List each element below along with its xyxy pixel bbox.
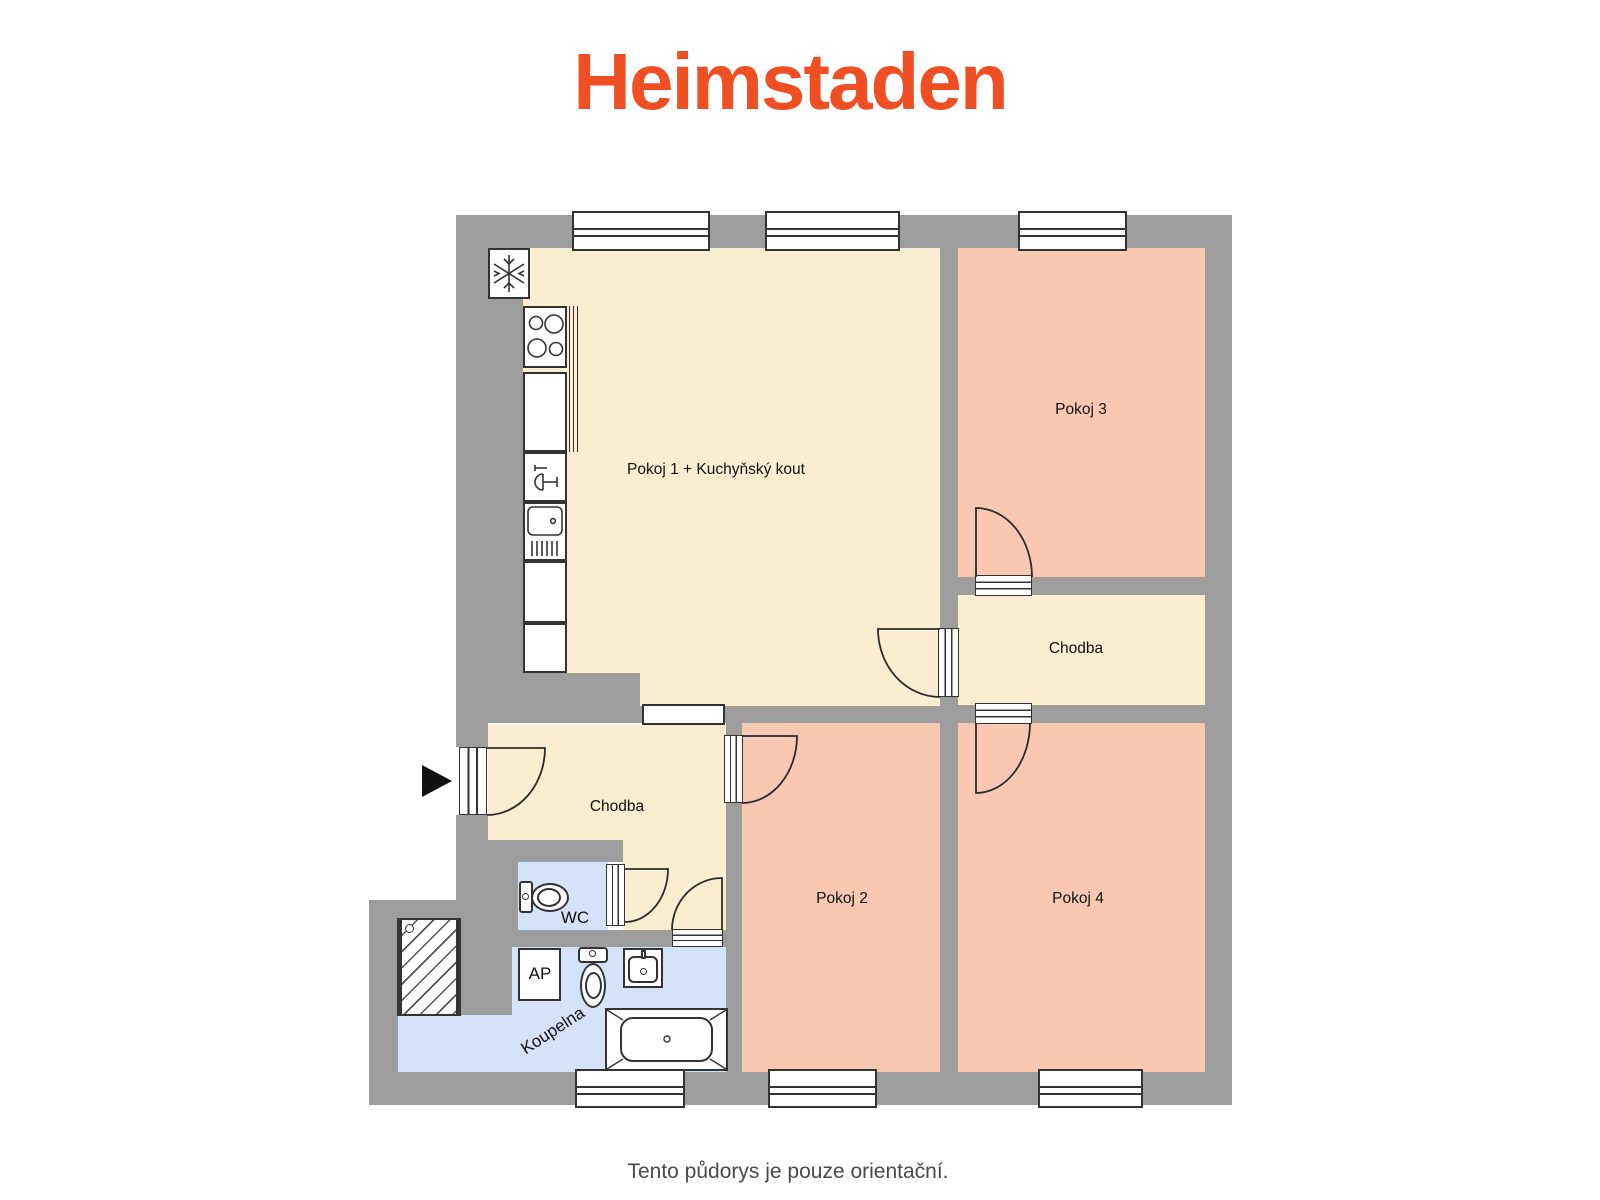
room-label-pokoj3: Pokoj 3	[1055, 401, 1107, 419]
room-label-pokoj2: Pokoj 2	[816, 890, 868, 908]
disclaimer-text: Tento půdorys je pouze orientační.	[627, 1160, 948, 1184]
room-label-pokoj1: Pokoj 1 + Kuchyňský kout	[627, 461, 805, 479]
washing-machine-label: AP	[529, 964, 552, 984]
room-label-wc: WC	[561, 908, 589, 928]
room-label-chodba-right: Chodba	[1049, 640, 1103, 658]
room-label-chodba-left: Chodba	[590, 798, 644, 816]
door-swing-overlay	[0, 0, 1600, 1200]
floor-plan-page: Heimstaden	[0, 0, 1600, 1200]
room-label-pokoj4: Pokoj 4	[1052, 890, 1104, 908]
